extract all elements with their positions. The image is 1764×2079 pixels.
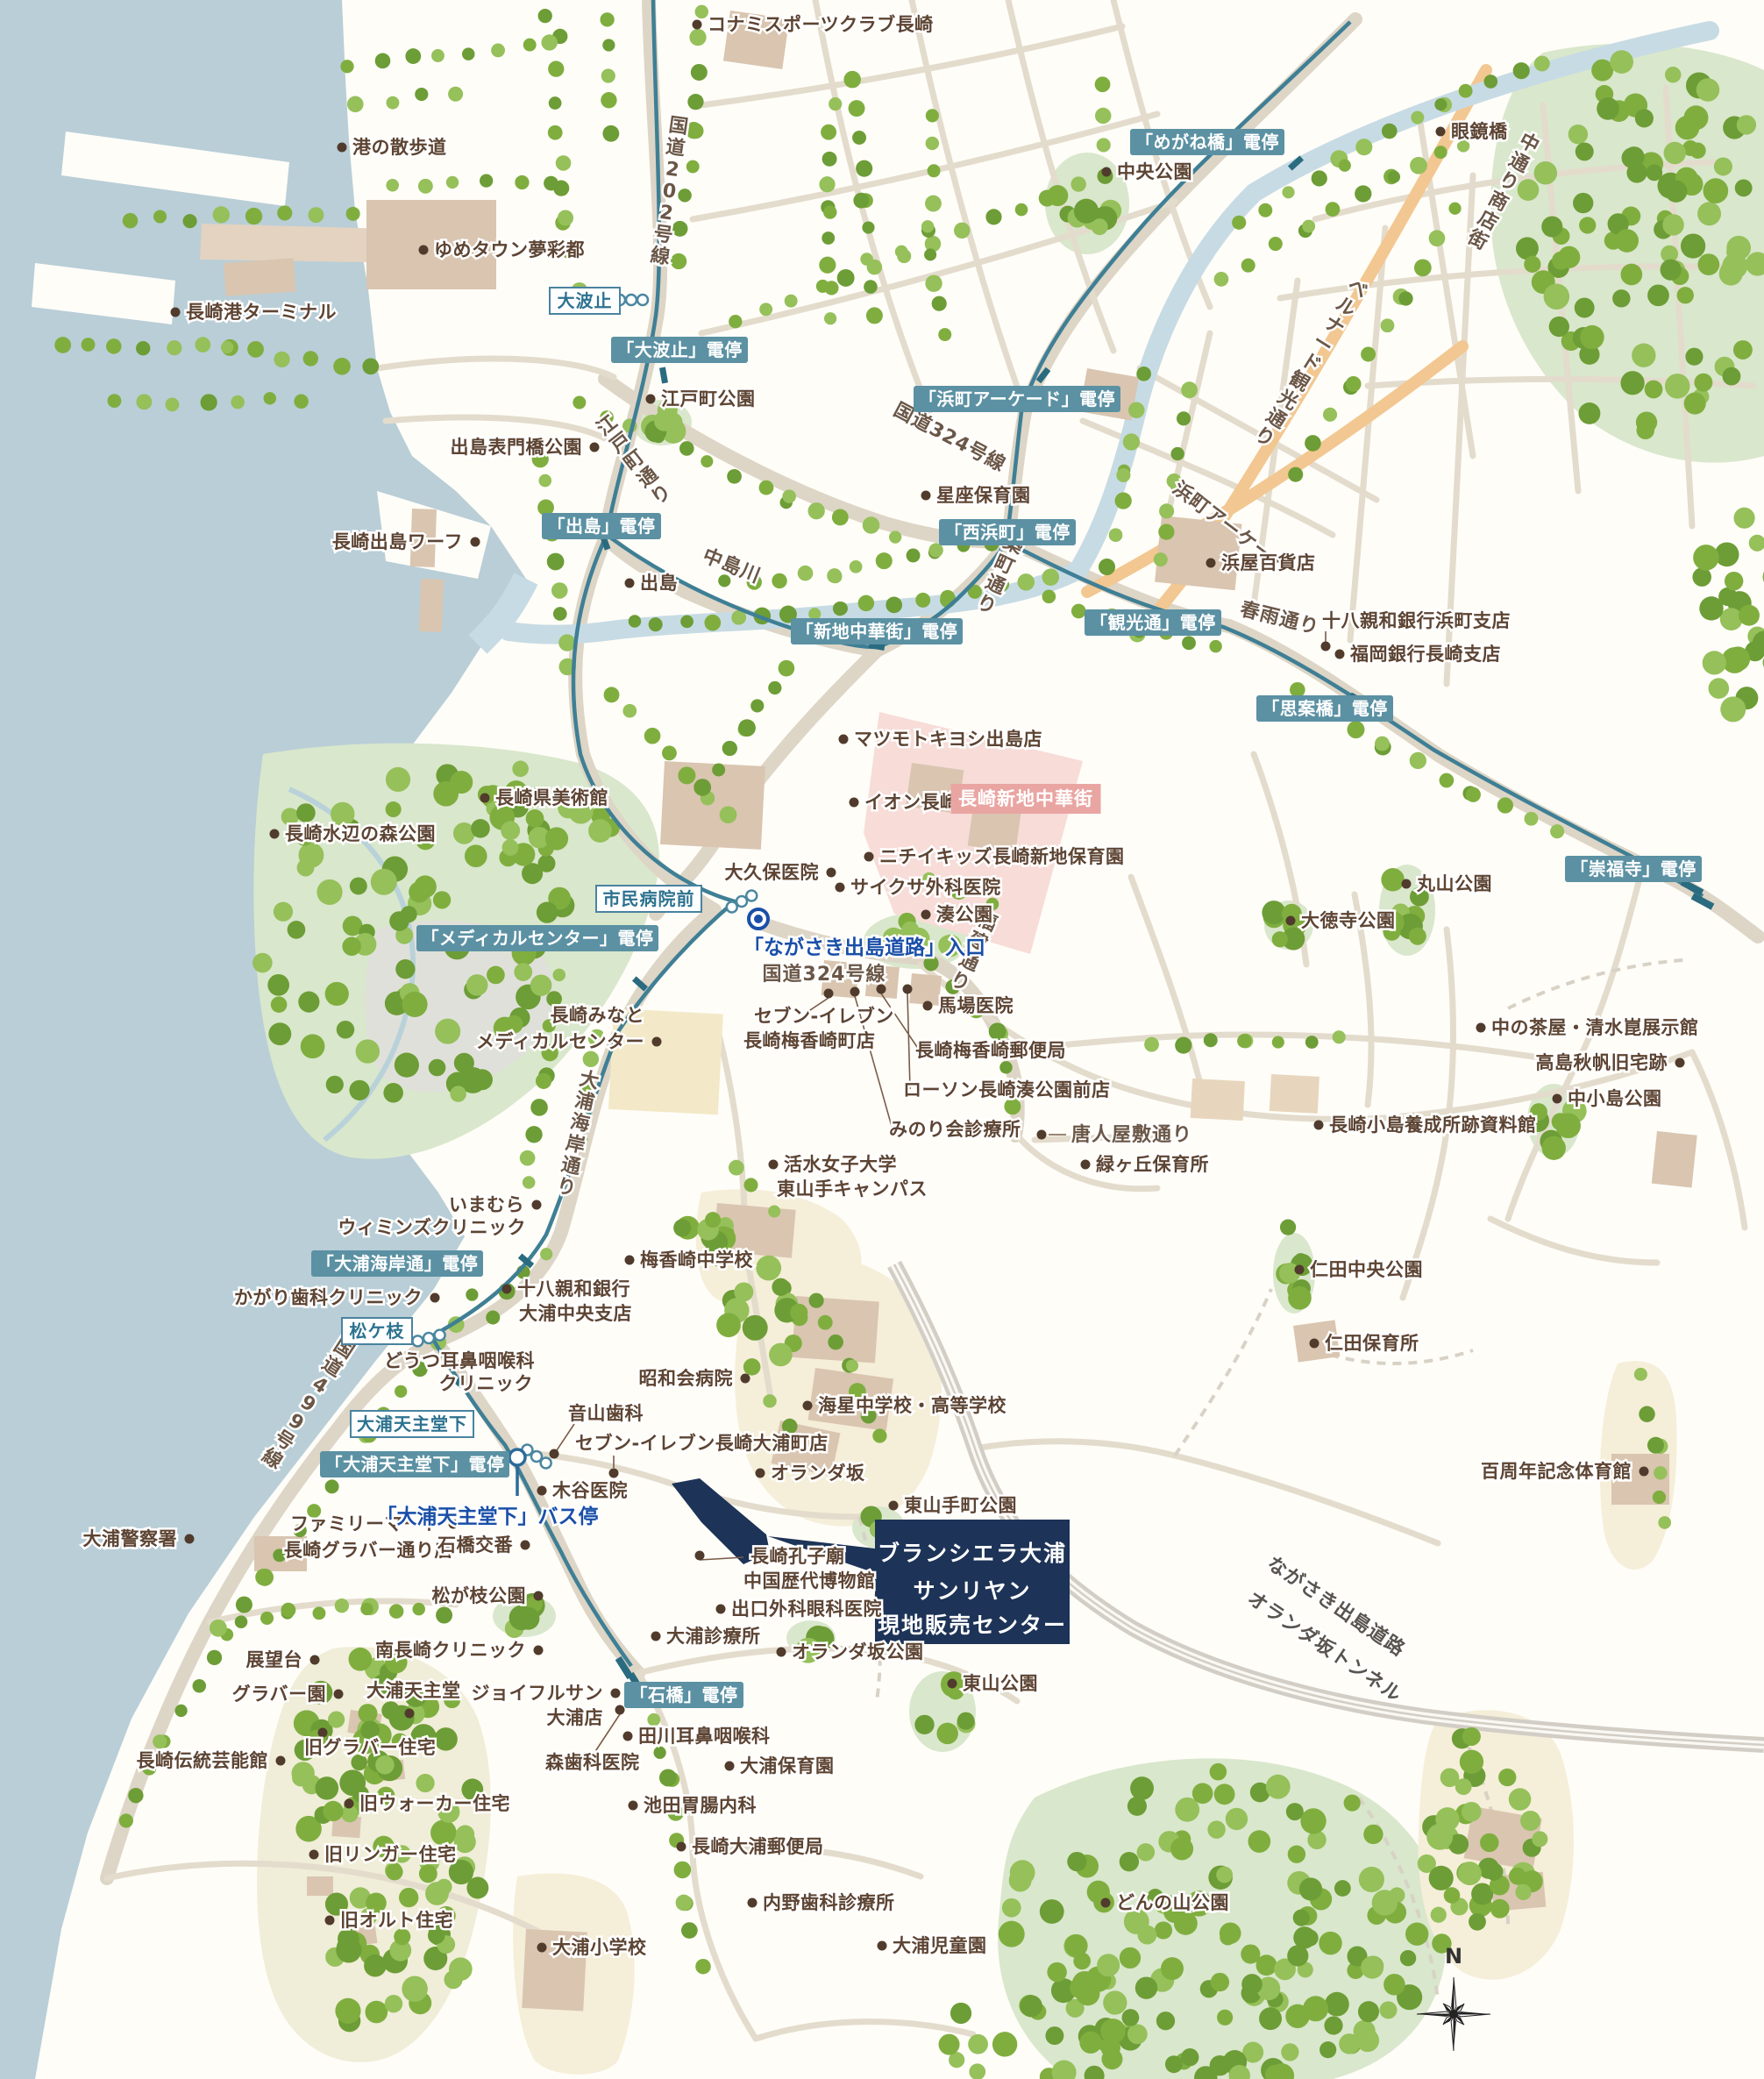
tree [720,806,737,823]
tree [1739,605,1760,626]
tree [1305,1036,1319,1049]
tree [1411,111,1424,125]
tree [1665,374,1690,399]
tree [763,1394,776,1407]
tree [785,295,798,308]
tree [231,395,245,409]
tree [968,2034,988,2054]
tree [448,87,463,102]
tree [1358,2001,1379,2022]
tree [1720,696,1746,722]
poi-label: 大浦児童園 [893,1935,987,1956]
tree [471,819,490,838]
tree [928,164,941,177]
tree [545,827,568,850]
tree [727,469,742,484]
tree [915,593,930,608]
tree [834,602,848,616]
tree [1305,435,1321,452]
poi-label: 十八親和銀行 [517,1278,630,1299]
tree [939,2034,960,2055]
poi-dot [1476,1023,1486,1033]
building [1270,1074,1319,1114]
poi-dot [839,735,849,744]
poi-label: 仁田中央公園 [1310,1259,1423,1280]
tree [1161,1957,1184,1980]
tree [247,341,264,358]
tree [383,1083,403,1103]
tree [1182,636,1196,650]
tree [538,9,552,23]
tram-stop-badge-label: 「思案橋」電停 [1262,698,1388,719]
tree [1658,1516,1671,1529]
building [307,1876,333,1896]
tree [1303,1996,1328,2021]
tram-stop-badge-label: 「浜町アーケード」電停 [919,388,1115,409]
poi-dot [646,395,656,404]
poi-dot [1102,167,1112,177]
tree [365,2001,388,2024]
poi-label: 活水女子大学 [784,1154,897,1175]
tree [402,992,428,1017]
tree [1282,186,1294,198]
tree [1515,1884,1531,1900]
tree [659,1769,677,1786]
poi-label: オランダ坂 [771,1463,865,1484]
poi-dot [310,1655,320,1665]
poi-dot [921,910,931,920]
tree [837,269,855,287]
poi-dot [756,1469,765,1478]
poi-label: 大徳寺公園 [1301,910,1396,931]
tree [772,573,786,588]
poi-label: 昭和会病院 [639,1368,734,1389]
tree [337,1021,354,1038]
tree [480,174,493,188]
tree [281,1603,296,1618]
tree [823,205,836,218]
tree [108,394,122,408]
poi-dot [615,1705,625,1715]
tree [938,328,951,341]
white-station-badge-label: 大波止 [558,290,613,311]
tree [268,1022,291,1045]
tree [686,160,700,174]
poi-label: 大浦天主堂 [366,1680,461,1701]
tree [1281,2043,1298,2061]
poi-label: セブン-イレブン長崎大浦町店 [575,1433,829,1454]
poi-label: 出口外科眼科医院 [731,1598,882,1620]
tree [335,1998,360,2024]
poi-dot [1335,650,1345,659]
tree [750,699,764,712]
poi-label: 十八親和銀行浜町支店 [1322,610,1511,631]
poi-label: 出島表門橋公園 [451,437,583,458]
poi-label: 百周年記念体育館 [1481,1461,1632,1482]
tree [1015,203,1028,217]
tree [1414,260,1432,277]
tree [360,1603,373,1615]
building [224,258,295,295]
tree [1192,1783,1213,1804]
tree [456,1825,474,1843]
tree [1300,1808,1326,1833]
tree [583,1051,599,1067]
tree [1144,1037,1159,1052]
poi-dot [502,1285,512,1294]
tree [602,39,615,51]
tree [340,60,353,73]
tree [444,1970,462,1989]
poi-label: 浜屋百貨店 [1221,552,1316,573]
tree [1703,651,1726,674]
poi-label: 中の茶屋・清水崑展示館 [1491,1017,1699,1038]
tree [1639,1406,1654,1422]
poi-label: 石橋交番 [437,1534,513,1556]
poi-dot [769,1160,779,1170]
tram-stop-badge-label: 「崇福寺」電停 [1570,858,1696,879]
poi-label: 長崎伝統芸能館 [137,1750,269,1771]
poi-dot [270,829,280,839]
tree [768,681,781,694]
poi-dot [827,868,836,878]
poi-dot [777,1648,786,1657]
tree [512,761,529,778]
tree [629,615,641,627]
tree [1580,325,1604,349]
tree [1704,178,1729,203]
tree [335,1598,349,1613]
tree [1248,1830,1271,1853]
tree [389,1604,404,1619]
tree [553,607,567,621]
tree [514,963,532,981]
tram-stop-badge-label: 「メディカルセンター」電停 [421,928,653,949]
tree [678,766,695,784]
poi-dot [836,883,845,893]
tree [1400,1950,1416,1966]
tree [600,12,614,26]
tree [395,1385,407,1398]
tree [604,687,620,702]
tree [1653,1491,1666,1504]
tree [245,208,262,224]
poi-label: 長崎グラバー通り店 [284,1540,453,1561]
tram-stop-badge-label: 「西浜町」電停 [944,522,1070,543]
tree [1620,371,1644,395]
tree [308,207,324,223]
tree [867,260,882,274]
poi-label: 大浦警察署 [83,1528,178,1549]
poi-dot [850,798,859,808]
poi-dot [695,1551,705,1561]
tree [653,1747,665,1759]
tree [1725,572,1743,590]
tree [1356,2029,1379,2052]
tree [128,1788,143,1803]
poi-dot [623,1732,633,1741]
poi-dot [611,1689,621,1698]
poi-dot [741,1374,750,1384]
tree [846,1359,858,1371]
tree [552,969,565,982]
poi-label: ニチイキッズ長崎新地保育園 [879,846,1125,867]
tree [1259,2007,1282,2030]
poi-label: メディカルセンター [476,1031,644,1052]
poi-dot [921,491,931,501]
tree [999,1061,1012,1073]
tree [313,1606,326,1620]
poi-label: クリニック [439,1373,534,1394]
tree [522,863,543,884]
bus-stop-icon [509,1449,525,1465]
tree [253,953,273,973]
tree [362,358,379,374]
tree [267,974,289,996]
tree [292,1769,309,1786]
tree [1448,203,1461,215]
tree [1552,1113,1569,1130]
tree [694,779,711,796]
tree [756,1256,781,1281]
tree [1042,590,1056,604]
poi-dot [430,1293,440,1303]
poi-label: 大久保医院 [725,862,820,883]
tree [462,47,475,61]
property-name-line1: ブランシエラ大浦 [878,1541,1067,1566]
tree [1647,1437,1664,1454]
poi-label: 長崎出島ワーフ [332,531,463,552]
tree [790,1304,807,1321]
tree [1181,381,1198,398]
tree [1661,260,1682,281]
tree [1677,287,1694,303]
building [1652,1131,1697,1187]
tree [924,248,936,260]
tree [863,516,879,533]
tree [1733,508,1754,529]
poi-label: 東山公園 [963,1673,1038,1694]
poi-label: 旧オルト住宅 [340,1910,453,1931]
tree [808,502,825,519]
tree [54,337,71,353]
tree [264,392,276,404]
tree [1165,2055,1183,2073]
tree [1301,1930,1318,1947]
tree [1552,252,1570,270]
poi-dot [185,1534,195,1544]
tree [1532,1831,1547,1847]
tree [1434,98,1447,110]
tree [601,92,616,108]
tree [689,29,706,46]
tree [1637,422,1655,440]
tree [1099,559,1115,575]
tree [822,231,835,245]
poi-label: コナミスポーツクラブ長崎 [708,14,934,35]
poi-dot [1037,1130,1047,1140]
tree [1122,2009,1140,2026]
tree [897,249,911,263]
tree [695,1959,711,1975]
tree [1469,1913,1486,1931]
tree [450,771,473,794]
tree [1696,78,1720,102]
tree [674,1862,692,1879]
poi-label: 長崎水辺の森公園 [285,823,436,844]
tree [193,1679,206,1692]
tree [375,53,391,69]
poi-label: 中央公園 [1117,161,1192,182]
tree [394,1928,410,1945]
tree [325,982,349,1006]
tree [602,125,619,142]
poi-dot [1286,916,1296,926]
tree [328,1712,345,1728]
tree [1379,2001,1397,2018]
tree [1156,2011,1175,2030]
tree [1597,97,1619,120]
tree [716,1313,741,1337]
tree [992,2032,1017,2056]
tree [1699,596,1723,620]
tree [1109,528,1123,542]
tree [371,869,397,895]
poi-dot [651,1632,661,1641]
tree [195,337,210,352]
tree [221,341,233,353]
poi-dot [748,1898,758,1908]
tree [540,1248,552,1260]
tree [1319,1932,1342,1955]
tree [601,68,615,82]
tree [676,1895,693,1912]
poi-dot [725,1762,735,1771]
tree [1498,1769,1516,1786]
poi-dot [1295,1265,1305,1275]
tree [1159,503,1174,518]
tree [412,1603,425,1616]
tree [1095,76,1111,92]
tree [957,1712,975,1730]
tree [375,1755,395,1775]
tree [1723,367,1741,386]
tram-stop-badge-label: 「大波止」電停 [616,339,743,360]
poi-label: 大浦診療所 [666,1626,761,1647]
tree [1097,1954,1120,1976]
tree [1232,216,1246,230]
tree [274,902,293,922]
tree [537,901,558,922]
tree [1155,1921,1172,1939]
tree [1359,1867,1384,1892]
tree [866,307,883,324]
poi-label: オランダ坂公園 [792,1641,924,1662]
poi-label: 高島秋帆旧宅跡 [1536,1052,1668,1073]
poi-label: 海星中学校・高等学校 [818,1395,1006,1416]
tree [1290,682,1305,698]
tree [1645,381,1663,399]
tree [1735,179,1753,196]
tree [1662,214,1683,235]
tree [1440,773,1455,788]
tree [1544,283,1569,309]
tree [515,175,529,189]
tree [349,1080,369,1100]
tree [1127,2024,1148,2044]
tree [255,1569,272,1585]
poi-label: 旧ウォーカー住宅 [359,1793,510,1814]
tree [907,549,921,563]
tree [454,1053,474,1073]
poi-label: 内野歯科診療所 [763,1892,895,1913]
poi-dot [652,1037,662,1047]
tree [385,1995,402,2012]
poi-dot [693,20,702,30]
poi-dot [419,246,429,255]
tree [1685,348,1703,366]
poi-label: 東山手町公園 [904,1495,1017,1516]
tree [1435,1807,1459,1831]
tree [999,1921,1025,1947]
poi-dot [850,987,860,997]
poi-label: どうつ耳鼻咽喉科 [384,1350,535,1371]
poi-dot [1640,1467,1649,1477]
poi-label: 長崎小島養成所跡資料館 [1329,1114,1537,1136]
poi-label: 大浦保育園 [740,1755,835,1776]
tree [701,455,713,467]
tree [386,179,399,192]
tree [1120,1852,1139,1871]
tree [260,1612,274,1625]
tree [821,125,836,140]
tree [1004,1098,1021,1114]
tree [1372,1890,1398,1915]
tree [824,312,836,324]
tree [680,615,694,628]
tree [182,214,196,228]
tree [1485,1862,1503,1880]
tree [1483,75,1497,89]
tree [136,394,152,409]
tree [819,176,835,192]
tree [950,2003,971,2024]
tree [985,209,1001,224]
poi-dot [878,1941,887,1951]
tree [1272,1036,1284,1049]
property-name-line2: サンリヤン [913,1578,1031,1604]
tree [210,1620,227,1637]
tree [1002,1898,1021,1918]
building [419,579,444,632]
poi-label: 木谷医院 [551,1480,628,1501]
property-name-line3: 現地販売センター [878,1613,1067,1638]
tree [1097,138,1111,152]
tree [331,802,354,826]
poi-label: 中小島公園 [1568,1088,1662,1109]
tree [1460,1750,1483,1774]
tree [573,396,586,409]
tree [1348,721,1365,738]
tree [662,745,677,760]
tree [1344,1795,1361,1812]
tree [1241,259,1255,273]
tree [1375,737,1390,751]
tree [1288,467,1303,482]
poi-label: 湊公園 [936,904,993,925]
tree [414,875,437,898]
tree [779,660,795,677]
